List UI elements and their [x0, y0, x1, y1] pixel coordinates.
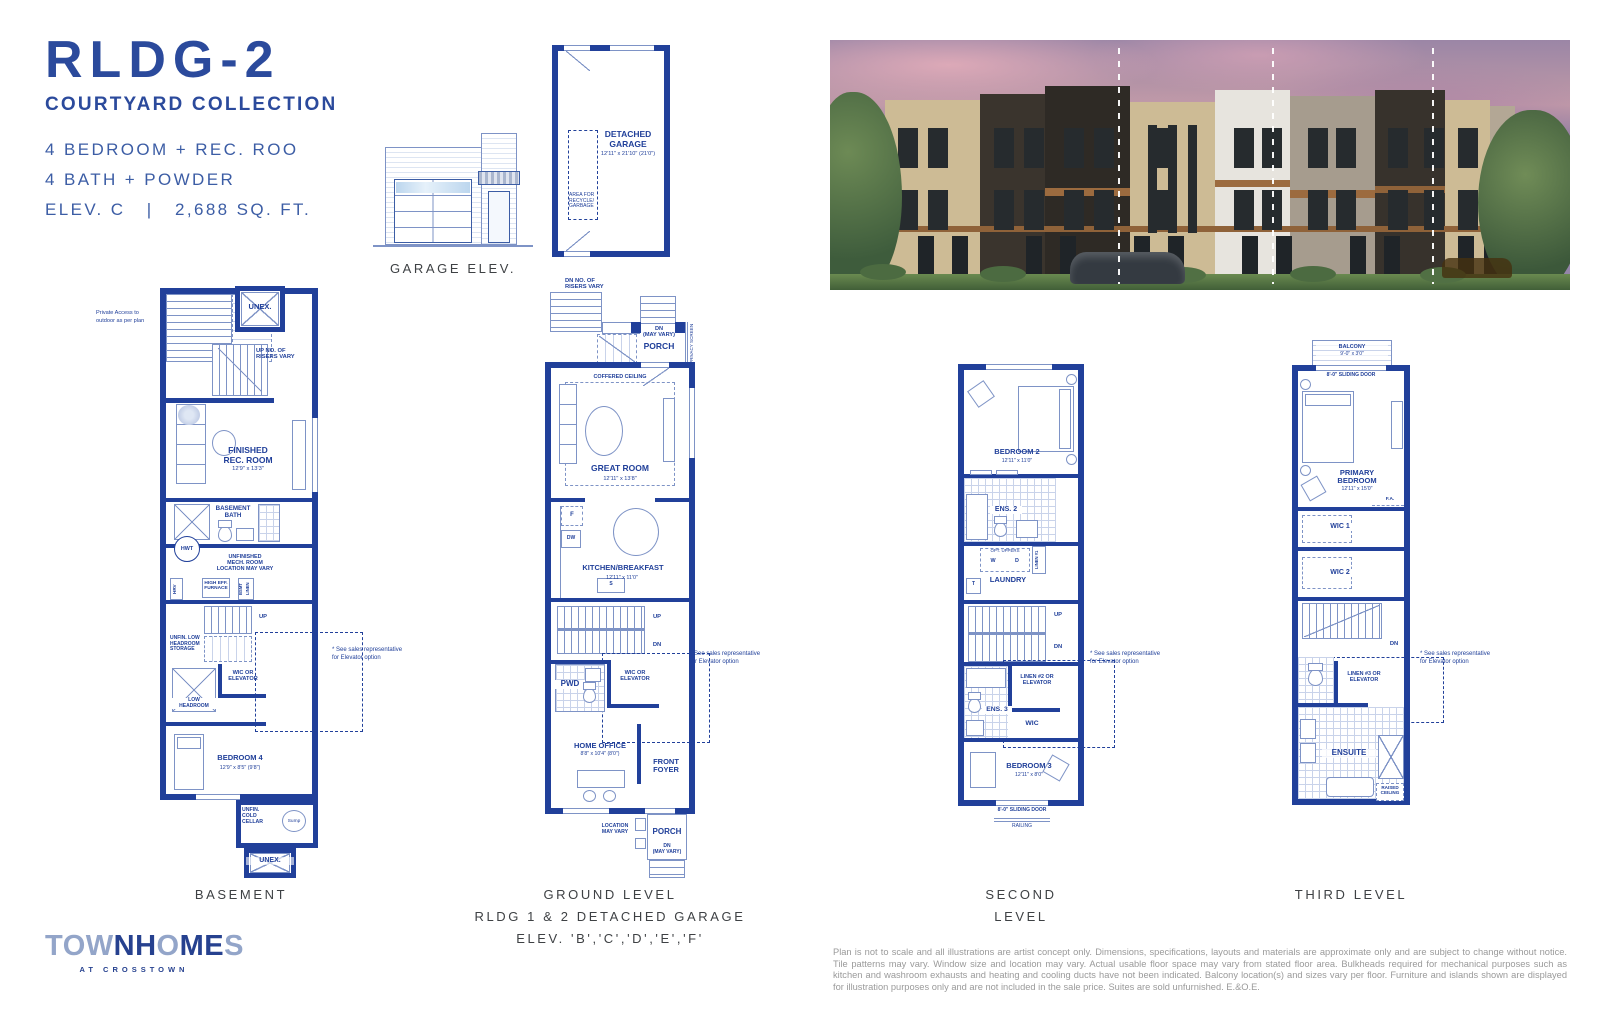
ens2-label: ENS. 2 — [990, 506, 1022, 514]
linen1-label: LINEN #1 — [1035, 548, 1043, 572]
unit-divider-dash-2 — [1272, 48, 1274, 284]
parked-car — [1070, 252, 1185, 284]
ground-porch-pillar-r — [675, 322, 685, 333]
ground-exterior-stair — [550, 292, 602, 332]
storage-dashed — [204, 636, 252, 662]
foyer-label: FRONT FOYER — [645, 758, 687, 775]
basement-wic-elev-label: WIC OR ELEVATOR — [222, 670, 264, 683]
second-wall-wic-t — [1012, 708, 1060, 712]
ground-interior-stair-arrow — [599, 336, 635, 362]
primary-bed — [1302, 391, 1354, 463]
recroom-console — [292, 420, 306, 490]
facade-wood-band-3 — [1290, 190, 1375, 198]
wic1-label: WIC 1 — [1320, 523, 1360, 531]
balcony-label: BALCONY — [1316, 344, 1388, 350]
bedroom4-label: BEDROOM 4 — [210, 754, 270, 762]
ens3-tub — [966, 668, 1006, 688]
ground-elevator-zone — [602, 653, 710, 743]
fa-label: F.A. — [1380, 497, 1400, 502]
second-sliding-label: 8'-0" SLIDING DOOR — [988, 808, 1056, 814]
ground-wall-kitchen-top2 — [655, 498, 689, 502]
office-chair-1 — [583, 790, 596, 802]
garage-door-bottom-left — [564, 251, 590, 257]
greatroom-window — [689, 388, 695, 458]
second-up-label: UP — [1048, 612, 1068, 618]
low-headroom-label: LOW HEADROOM — [170, 698, 218, 709]
ground-up-label: UP — [647, 614, 667, 620]
office-label: HOME OFFICE — [565, 742, 635, 750]
basement-bath-vanity — [236, 528, 254, 541]
ensuite-vanity-2 — [1300, 743, 1316, 763]
second-wic-label: WIC — [1016, 720, 1048, 728]
second-plan: BEDROOM 2 12'11" x 11'0" ENS. 2 OPT. UPP… — [958, 360, 1084, 830]
third-wall-wic2-top — [1298, 547, 1404, 551]
ground-porch-bottom-steps — [649, 860, 685, 878]
basement-wall-bath-top — [166, 498, 312, 502]
ground-meter-1 — [635, 818, 646, 831]
third-sliding-label: 8'-0" SLIDING DOOR — [1314, 373, 1388, 379]
bedroom4-bed — [174, 734, 204, 790]
primary-nightstand-2 — [1300, 465, 1311, 476]
second-wall-laundry-top — [964, 542, 1078, 546]
bedroom2-nightstand-2 — [1066, 454, 1077, 465]
logo-tagline: AT CROSSTOWN — [45, 965, 223, 974]
primary-dims: 12'11" x 15'0" — [1332, 487, 1382, 493]
ground-wall-stairs-top — [551, 598, 689, 602]
garage-side-door — [488, 191, 510, 243]
laundry-tub-label: T — [966, 582, 981, 588]
basement-unex-top-label: UNEX. — [237, 303, 283, 311]
facade-windows-upper — [898, 128, 918, 168]
third-wall-wic1-top — [1298, 507, 1404, 511]
laundry-label: LAUNDRY — [982, 576, 1034, 584]
hero-rendering — [830, 40, 1570, 290]
basement-wall-wic-b — [218, 694, 266, 698]
garage-elev-caption: GARAGE ELEV. — [378, 258, 528, 280]
ground-dn-risers-label: DN NO. OF RISERS VARY — [565, 278, 623, 291]
basement-plan: UNEX. UP NO. OF RISERS VARY FINISHED REC… — [160, 286, 322, 878]
primary-label: PRIMARY BEDROOM — [1332, 469, 1382, 486]
garage-door-swing-top — [566, 51, 590, 71]
ground-wic-elev-label: WIC OR ELEVATOR — [613, 670, 657, 683]
ground-porch-bottom-label: PORCH — [649, 828, 685, 837]
third-toilet — [1308, 669, 1323, 686]
ens2-tub — [966, 494, 988, 540]
privacy-screen-line — [685, 322, 688, 366]
ensuite-label: ENSUITE — [1322, 749, 1376, 758]
bedroom2-closet-door-1 — [970, 470, 992, 475]
spec-line-2: 4 BATH + POWDER — [45, 170, 375, 190]
spec-line-1: 4 BEDROOM + REC. ROO — [45, 140, 375, 160]
ensuite-shower — [1378, 735, 1404, 779]
hwt-label: HWT — [181, 546, 193, 552]
bsmt-linen-label-2: LINEN — [246, 579, 253, 599]
mech-room-label: UNFINISHED MECH. ROOM LOCATION MAY VARY — [200, 554, 290, 572]
basement-elevator-zone — [255, 632, 363, 732]
office-dims: 8'8" x 10'4" (8'0") — [567, 752, 633, 758]
basement-wall-bed4-top — [166, 722, 266, 726]
balcony-dims: 9'-0" x 3'0" — [1316, 352, 1388, 358]
parked-car-right — [1442, 258, 1512, 278]
ground-porch-steps — [640, 296, 676, 324]
ground-dn-label: DN — [647, 642, 667, 648]
greatroom-dims: 12'11" x 13'8" — [587, 476, 653, 482]
bedroom4-window — [196, 794, 240, 800]
unit-divider-dash-3 — [1432, 48, 1434, 284]
brand-logo: TOWNHOMES AT CROSSTOWN — [45, 930, 265, 974]
bedroom2-closet-door-2 — [996, 470, 1018, 475]
third-wall-stairs-top — [1298, 597, 1404, 601]
kitchen-dw-label: DW — [561, 536, 581, 542]
office-desk — [577, 770, 625, 788]
third-dn-label: DN — [1384, 641, 1404, 647]
garage-window-top — [610, 45, 654, 51]
third-sliding-door — [1316, 365, 1386, 371]
kitchen-table — [613, 508, 659, 556]
garage-elevation-drawing — [385, 133, 525, 258]
linen2-label: LINEN #2 OR ELEVATOR — [1014, 674, 1060, 686]
fa-dash — [1372, 505, 1404, 506]
greatroom-console — [663, 398, 675, 462]
second-wall-linen2-l — [1008, 666, 1012, 710]
floorplan-sheet: RLDG-2 COURTYARD COLLECTION 4 BEDROOM + … — [0, 0, 1600, 1035]
kitchen-label: KITCHEN/BREAKFAST — [581, 564, 665, 572]
facade-wood-band-2 — [1215, 180, 1290, 187]
garage-door-glazing — [396, 182, 470, 193]
ground-wall-wic-b — [607, 704, 659, 708]
ens2-vanity — [1016, 520, 1038, 538]
second-railing-label: RAILING — [998, 824, 1046, 830]
detached-garage-plan: DETACHED GARAGE 12'11" x 21'10" (21'0") … — [552, 45, 670, 257]
bedroom2-dims: 12'11" x 11'0" — [990, 459, 1044, 465]
bedroom3-dims: 12'11" x 8'0" — [1002, 773, 1056, 779]
primary-nightstand-1 — [1300, 379, 1311, 390]
cold-cellar-label: UNFIN. COLD CELLAR — [242, 808, 276, 825]
recycle-label: AREA FOR RECYCLE/ GARBAGE — [569, 193, 597, 210]
greatroom-sofa — [559, 384, 577, 464]
ground-wall-kitchen-top — [551, 498, 585, 502]
office-chair-2 — [603, 790, 616, 802]
ground-meter-2 — [635, 838, 646, 849]
second-railing — [994, 818, 1050, 822]
pwd-toilet — [583, 688, 596, 703]
third-caption: THIRD LEVEL — [1292, 884, 1410, 906]
raised-ceiling-label: RAISED CEILING — [1376, 785, 1404, 795]
third-plan: BALCONY 9'-0" x 3'0" 8'-0" SLIDING DOOR … — [1292, 335, 1410, 805]
ground-wall-foyer-l — [637, 724, 641, 784]
greatroom-table — [585, 406, 623, 456]
facade-section-2 — [980, 94, 1045, 290]
pwd-label: PWD — [555, 680, 585, 689]
basement-bath-toilet — [218, 526, 232, 542]
garage-plan-dims: 12'11" x 21'10" (21'0") — [588, 151, 668, 157]
garage-ground-line — [373, 245, 533, 247]
recroom-dims: 12'9" x 13'3" — [212, 466, 284, 472]
wic2-label: WIC 2 — [1320, 569, 1360, 577]
basement-recroom-window-r — [312, 418, 318, 492]
header-block: RLDG-2 COURTYARD COLLECTION 4 BEDROOM + … — [45, 30, 375, 220]
ground-porch-pillar-l — [631, 322, 641, 333]
hrv-label: HRV — [172, 580, 181, 598]
spec-line-3: ELEV. C | 2,688 SQ. FT. — [45, 200, 375, 220]
washer-label: W — [984, 558, 1002, 564]
second-wall-bed3-top — [964, 738, 1078, 742]
sump-circle: Sump — [282, 810, 306, 832]
privacy-screen-label: PRIVACY SCREEN — [689, 322, 697, 366]
linen3-label: LINEN #3 OR ELEVATOR — [1340, 671, 1388, 683]
basement-caption: BASEMENT — [160, 884, 322, 906]
garage-door-swing-bottom — [566, 231, 590, 251]
ensuite-tub — [1326, 777, 1374, 797]
primary-bench — [1391, 401, 1403, 449]
shrub-row — [860, 264, 906, 280]
facade-slit-windows — [1148, 125, 1157, 233]
coffered-ceiling-label: COFFERED CEILING — [583, 374, 657, 380]
logo-word: TOWNHOMES — [45, 930, 265, 963]
kitchen-sink-label: S — [597, 582, 625, 588]
basement-wall-stair — [166, 398, 274, 403]
facade-wood-band-4 — [1375, 186, 1445, 193]
second-stairs-rail — [968, 632, 1046, 635]
ens3-label: ENS. 3 — [982, 706, 1012, 714]
hwt-tank: HWT — [174, 536, 200, 562]
ens2-toilet — [994, 522, 1007, 537]
ground-plan: DN NO. OF RISERS VARY DN (MAY VARY) PORC… — [545, 278, 695, 878]
bedroom2-nightstand-1 — [1066, 374, 1077, 385]
bedroom3-dresser — [970, 752, 996, 788]
basement-up-label: UP — [254, 614, 272, 620]
kitchen-dims: 12'11" x 11'0" — [589, 575, 655, 581]
furnace-label: HIGH EFF. FURNACE — [200, 581, 232, 592]
bedroom2-window — [986, 364, 1052, 370]
garage-plan-name: DETACHED GARAGE — [592, 130, 664, 149]
ens3-toilet — [968, 698, 981, 713]
kitchen-counter — [551, 506, 561, 598]
bedroom2-bed — [1018, 386, 1074, 452]
location-vary-label: LOCATION MAY VARY — [595, 824, 635, 836]
dryer-label: D — [1008, 558, 1026, 564]
bedroom3-label: BEDROOM 3 — [1000, 762, 1058, 770]
opt-uppers-label: OPT. UPPERS — [980, 549, 1030, 554]
bedroom3-sliding-door — [996, 800, 1048, 806]
collection-subtitle: COURTYARD COLLECTION — [45, 94, 375, 116]
basement-up-risers-label: UP NO. OF RISERS VARY — [256, 348, 314, 361]
basement-wall-mech-bottom — [166, 600, 312, 604]
ground-dn-vary-top: DN (MAY VARY) — [639, 326, 679, 339]
ground-stairs-rail — [557, 628, 645, 631]
facade-fascia-band — [885, 226, 1515, 232]
ens3-vanity — [966, 720, 984, 736]
ground-caption: GROUND LEVEL RLDG 1 & 2 DETACHED GARAGE … — [460, 884, 760, 950]
recroom-plant — [178, 405, 200, 425]
bedroom4-dims: 12'9" x 8'5" (9'8") — [208, 765, 272, 771]
ensuite-vanity — [1300, 719, 1316, 739]
third-wall-linen3 — [1334, 661, 1338, 703]
sump-label: Sump — [288, 819, 301, 824]
basement-bath-label: BASEMENT BATH — [212, 506, 254, 520]
basement-stair-mid — [204, 606, 252, 634]
second-wall-stairs-top — [964, 600, 1078, 604]
recroom-label: FINISHED REC. ROOM — [212, 446, 284, 465]
basement-unex-bottom-label: UNEX. — [246, 857, 294, 865]
basement-private-access-note: Private Access to outdoor as per plan — [96, 310, 160, 325]
pwd-sink — [585, 668, 601, 682]
basement-bath-shower — [258, 504, 280, 542]
second-dn-label: DN — [1048, 644, 1068, 650]
storage-label: UNFIN. LOW HEADROOM STORAGE — [170, 636, 206, 653]
office-window — [563, 808, 609, 814]
greatroom-label: GREAT ROOM — [585, 464, 655, 474]
disclaimer-text: Plan is not to scale and all illustratio… — [833, 947, 1567, 993]
second-caption: SECOND LEVEL — [958, 884, 1084, 928]
kitchen-fridge-label: F — [561, 512, 583, 519]
page-title: RLDG-2 — [45, 30, 375, 90]
bedroom2-label: BEDROOM 2 — [988, 448, 1046, 456]
facade-section-5 — [1215, 90, 1290, 290]
garage-tower-canopy — [478, 171, 520, 185]
unit-divider-dash-1 — [1118, 48, 1120, 284]
ground-wall-wic-l — [607, 660, 611, 708]
ground-porch-top-label: PORCH — [641, 342, 677, 352]
ground-dn-vary-bottom: DN (MAY VARY) — [649, 844, 685, 855]
basement-window-well — [174, 504, 210, 540]
third-stairs-rail — [1304, 605, 1380, 637]
